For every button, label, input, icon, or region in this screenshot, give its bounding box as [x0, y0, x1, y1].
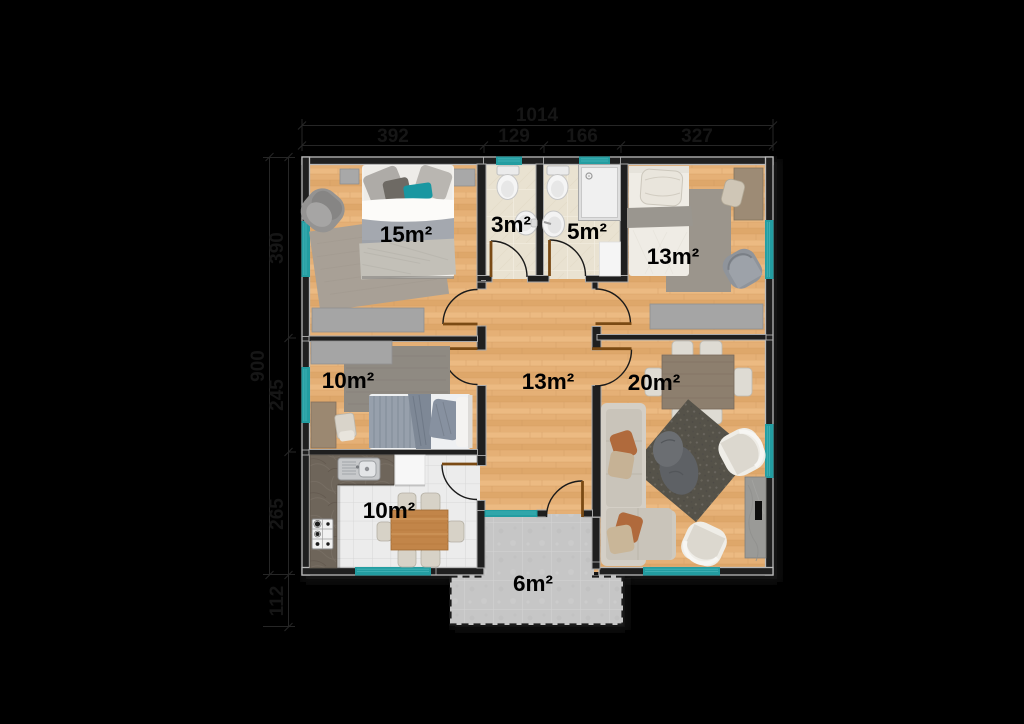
- svg-text:6m²: 6m²: [513, 571, 554, 596]
- svg-text:245: 245: [267, 379, 288, 411]
- svg-text:3m²: 3m²: [491, 212, 532, 237]
- svg-text:390: 390: [267, 232, 288, 264]
- svg-text:5m²: 5m²: [567, 219, 608, 244]
- svg-text:327: 327: [681, 126, 713, 147]
- svg-text:10m²: 10m²: [363, 498, 416, 523]
- svg-text:900: 900: [248, 350, 269, 382]
- svg-text:15m²: 15m²: [380, 222, 433, 247]
- svg-text:166: 166: [566, 126, 598, 147]
- svg-text:13m²: 13m²: [522, 369, 575, 394]
- svg-text:1014: 1014: [516, 105, 559, 126]
- svg-text:10m²: 10m²: [322, 368, 375, 393]
- svg-text:265: 265: [267, 498, 288, 530]
- svg-text:129: 129: [498, 126, 530, 147]
- svg-text:392: 392: [377, 126, 409, 147]
- svg-text:13m²: 13m²: [647, 244, 700, 269]
- svg-text:20m²: 20m²: [628, 370, 681, 395]
- svg-text:112: 112: [267, 586, 288, 617]
